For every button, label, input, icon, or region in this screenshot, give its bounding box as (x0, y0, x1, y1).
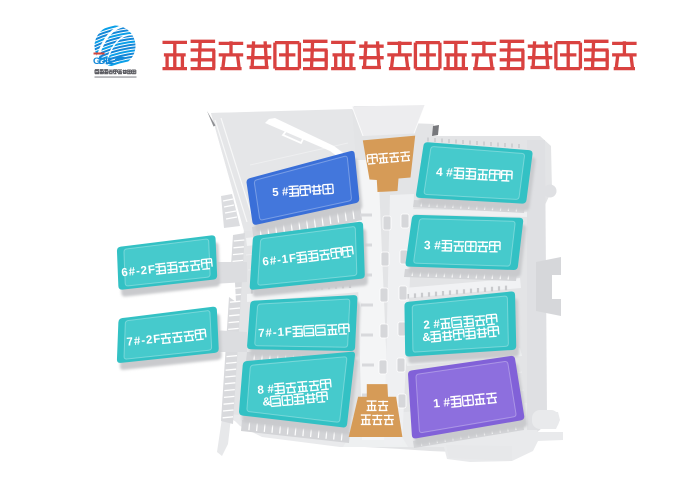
svg-text:GDTE: GDTE (93, 56, 114, 67)
svg-text:7#-1F: 7#-1F (258, 325, 292, 340)
